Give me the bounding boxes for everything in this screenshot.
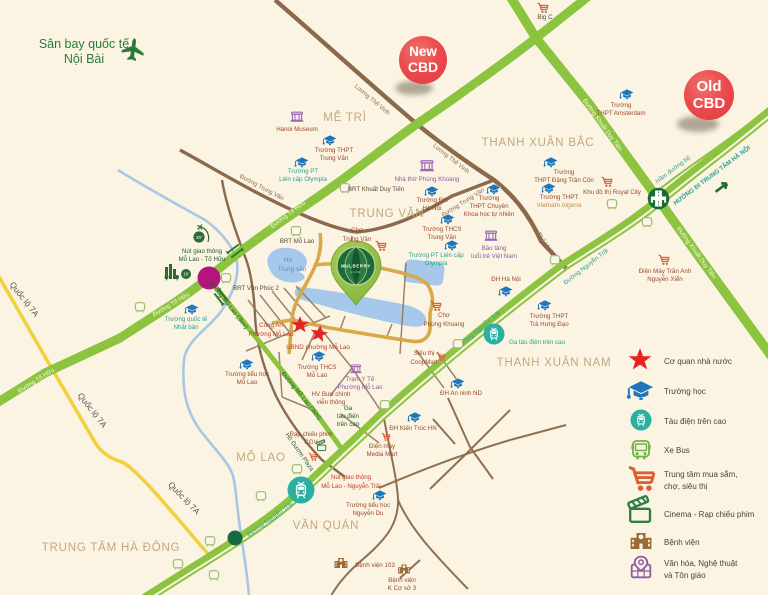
- svg-text:Điện máy: Điện máy: [369, 443, 396, 450]
- svg-text:Trường ĐH: Trường ĐH: [416, 197, 447, 204]
- svg-text:Trường THCS: Trường THCS: [297, 364, 336, 371]
- svg-text:Văn hóa, Nghệ thuật: Văn hóa, Nghệ thuật: [664, 559, 738, 568]
- svg-text:Hồ: Hồ: [284, 255, 293, 264]
- svg-text:THPT Amsterdam: THPT Amsterdam: [596, 110, 645, 117]
- svg-text:MỄ TRÌ: MỄ TRÌ: [323, 111, 367, 124]
- svg-text:Cinema - Rạp chiếu phim: Cinema - Rạp chiếu phim: [664, 510, 755, 519]
- svg-text:Trường THPT: Trường THPT: [315, 147, 354, 154]
- svg-text:Trung văn: Trung văn: [278, 266, 307, 273]
- svg-text:Phường Mỗ Lao: Phường Mỗ Lao: [337, 384, 383, 391]
- svg-text:CBD: CBD: [408, 59, 438, 75]
- svg-text:K Cơ sở 3: K Cơ sở 3: [388, 585, 417, 592]
- svg-text:Olympia: Olympia: [425, 260, 448, 267]
- svg-text:Trung tâm mua sắm,: Trung tâm mua sắm,: [664, 470, 738, 479]
- svg-text:Nút giao thông: Nút giao thông: [182, 248, 223, 255]
- svg-text:tuổi trẻ Việt Nam: tuổi trẻ Việt Nam: [471, 253, 517, 260]
- svg-text:Chợ: Chợ: [438, 312, 450, 319]
- svg-text:Nội Bài: Nội Bài: [64, 52, 104, 66]
- svg-text:Nhật bản: Nhật bản: [173, 324, 199, 331]
- svg-text:Nguyễn Xiển: Nguyễn Xiển: [647, 276, 683, 283]
- svg-text:Ga tàu điện trên cao: Ga tàu điện trên cao: [509, 339, 566, 346]
- svg-text:ĐH Hà Nội: ĐH Hà Nội: [491, 276, 521, 283]
- svg-text:Tàu điện trên cao: Tàu điện trên cao: [664, 417, 727, 426]
- svg-text:Cơ quan nhà nước: Cơ quan nhà nước: [664, 357, 732, 366]
- svg-text:THANH XUÂN BẮC: THANH XUÂN BẮC: [482, 136, 595, 149]
- svg-text:và Tôn giáo: và Tôn giáo: [664, 571, 706, 580]
- svg-text:Xe Bus: Xe Bus: [664, 446, 690, 455]
- svg-text:Trường quốc tế: Trường quốc tế: [165, 316, 208, 323]
- svg-text:Mỗ Lao - Nguyễn Trãi: Mỗ Lao - Nguyễn Trãi: [321, 483, 381, 490]
- svg-text:viễn thông: viễn thông: [317, 399, 346, 406]
- svg-text:Mỗ Lao: Mỗ Lao: [237, 379, 258, 386]
- svg-text:Sân bay quốc tế: Sân bay quốc tế: [39, 37, 129, 51]
- svg-text:Trung Văn: Trung Văn: [320, 155, 349, 162]
- svg-text:Hà Nội: Hà Nội: [423, 205, 442, 212]
- svg-text:Trường PT Liên cấp: Trường PT Liên cấp: [408, 252, 464, 259]
- svg-text:Trà Hưng Đạo: Trà Hưng Đạo: [529, 321, 569, 328]
- svg-text:ĐH An ninh ND: ĐH An ninh ND: [440, 390, 482, 397]
- svg-text:Nguyễn Du: Nguyễn Du: [353, 510, 385, 517]
- svg-text:Mỗ Lao: Mỗ Lao: [307, 372, 328, 379]
- svg-text:Rạp chiếu phim: Rạp chiếu phim: [290, 431, 333, 438]
- svg-text:20': 20': [196, 235, 202, 240]
- svg-text:Trường tiểu học: Trường tiểu học: [346, 502, 390, 509]
- svg-text:THANH XUÂN NAM: THANH XUÂN NAM: [497, 356, 612, 369]
- svg-text:Bệnh viện 103: Bệnh viện 103: [355, 562, 395, 569]
- svg-text:Phùng Khoang: Phùng Khoang: [424, 321, 466, 328]
- svg-text:Hanoi Museum: Hanoi Museum: [276, 126, 318, 133]
- svg-text:Bệnh viện: Bệnh viện: [664, 538, 700, 547]
- svg-text:tàu điện: tàu điện: [337, 413, 360, 420]
- svg-text:Phường Mỗ Lao: Phường Mỗ Lao: [248, 331, 294, 338]
- svg-text:Trường PT: Trường PT: [288, 168, 319, 175]
- svg-text:Trường THPT: Trường THPT: [530, 313, 569, 320]
- svg-text:Khu đô thị Royal City: Khu đô thị Royal City: [583, 189, 642, 196]
- svg-text:Trường: Trường: [479, 195, 500, 202]
- svg-text:Bảo tàng: Bảo tàng: [482, 245, 507, 252]
- svg-text:Chợ: Chợ: [351, 227, 363, 234]
- svg-text:Big C: Big C: [537, 14, 553, 21]
- svg-text:Nút giao thông: Nút giao thông: [331, 474, 372, 481]
- svg-text:19': 19': [183, 272, 189, 277]
- svg-text:Bệnh viện: Bệnh viện: [388, 577, 416, 584]
- svg-text:Điện Máy Trần Anh: Điện Máy Trần Anh: [639, 268, 692, 275]
- svg-text:Liên cấp Olympia: Liên cấp Olympia: [279, 176, 327, 183]
- svg-text:Vietnam Algeria: Vietnam Algeria: [537, 202, 582, 209]
- svg-text:Trường: Trường: [611, 102, 632, 109]
- svg-text:THPT Đặng Trần Côn: THPT Đặng Trần Côn: [534, 177, 594, 184]
- svg-text:MULBERRY: MULBERRY: [341, 264, 371, 269]
- svg-text:UBND phường Mỗ Lao: UBND phường Mỗ Lao: [286, 344, 350, 351]
- svg-text:Mỗ Lao - Tố Hữu: Mỗ Lao - Tố Hữu: [178, 256, 226, 263]
- svg-text:TRUNG VĂN: TRUNG VĂN: [350, 207, 425, 220]
- svg-text:TRUNG TÂM HÀ ĐÔNG: TRUNG TÂM HÀ ĐÔNG: [42, 541, 181, 554]
- svg-text:BRT Khuất Duy Tiến: BRT Khuất Duy Tiến: [348, 186, 405, 193]
- svg-text:New: New: [409, 44, 437, 59]
- svg-text:Trường THCS: Trường THCS: [422, 226, 461, 233]
- svg-text:Trường THPT: Trường THPT: [540, 194, 579, 201]
- svg-text:trên cao: trên cao: [337, 421, 360, 428]
- svg-text:Trường tiểu học: Trường tiểu học: [225, 371, 269, 378]
- svg-text:Trường: Trường: [554, 169, 575, 176]
- svg-text:Nhà thờ Phùng Khoang: Nhà thờ Phùng Khoang: [395, 176, 461, 183]
- svg-text:Khoa học tự nhiên: Khoa học tự nhiên: [464, 211, 515, 218]
- svg-text:Trung Văn: Trung Văn: [428, 234, 457, 241]
- svg-text:Trạm Y Tế: Trạm Y Tế: [346, 376, 375, 383]
- svg-text:ĐH Kiến Trúc HN: ĐH Kiến Trúc HN: [389, 425, 436, 432]
- svg-text:THPT Chuyên: THPT Chuyên: [469, 203, 509, 210]
- svg-text:BRT Mỗ Lao: BRT Mỗ Lao: [280, 238, 315, 245]
- svg-text:Old: Old: [697, 78, 722, 95]
- svg-text:BRT Văn Phúc 2: BRT Văn Phúc 2: [233, 285, 279, 292]
- svg-text:CoopMart: CoopMart: [410, 359, 437, 366]
- svg-text:LANE: LANE: [351, 270, 362, 274]
- svg-text:chợ, siêu thị: chợ, siêu thị: [664, 482, 708, 491]
- svg-text:MỖ LAO: MỖ LAO: [236, 451, 286, 464]
- svg-text:Siêu thị: Siêu thị: [414, 350, 435, 357]
- svg-text:Media Mart: Media Mart: [367, 451, 398, 458]
- svg-text:Ga: Ga: [344, 405, 353, 412]
- svg-text:Trung Văn: Trung Văn: [343, 236, 372, 243]
- svg-text:Công An: Công An: [259, 322, 283, 329]
- svg-text:CBD: CBD: [693, 95, 726, 112]
- svg-text:VĂN QUÁN: VĂN QUÁN: [293, 519, 359, 532]
- svg-text:HV Bưu chính: HV Bưu chính: [312, 391, 351, 398]
- svg-text:Trường học: Trường học: [664, 387, 706, 396]
